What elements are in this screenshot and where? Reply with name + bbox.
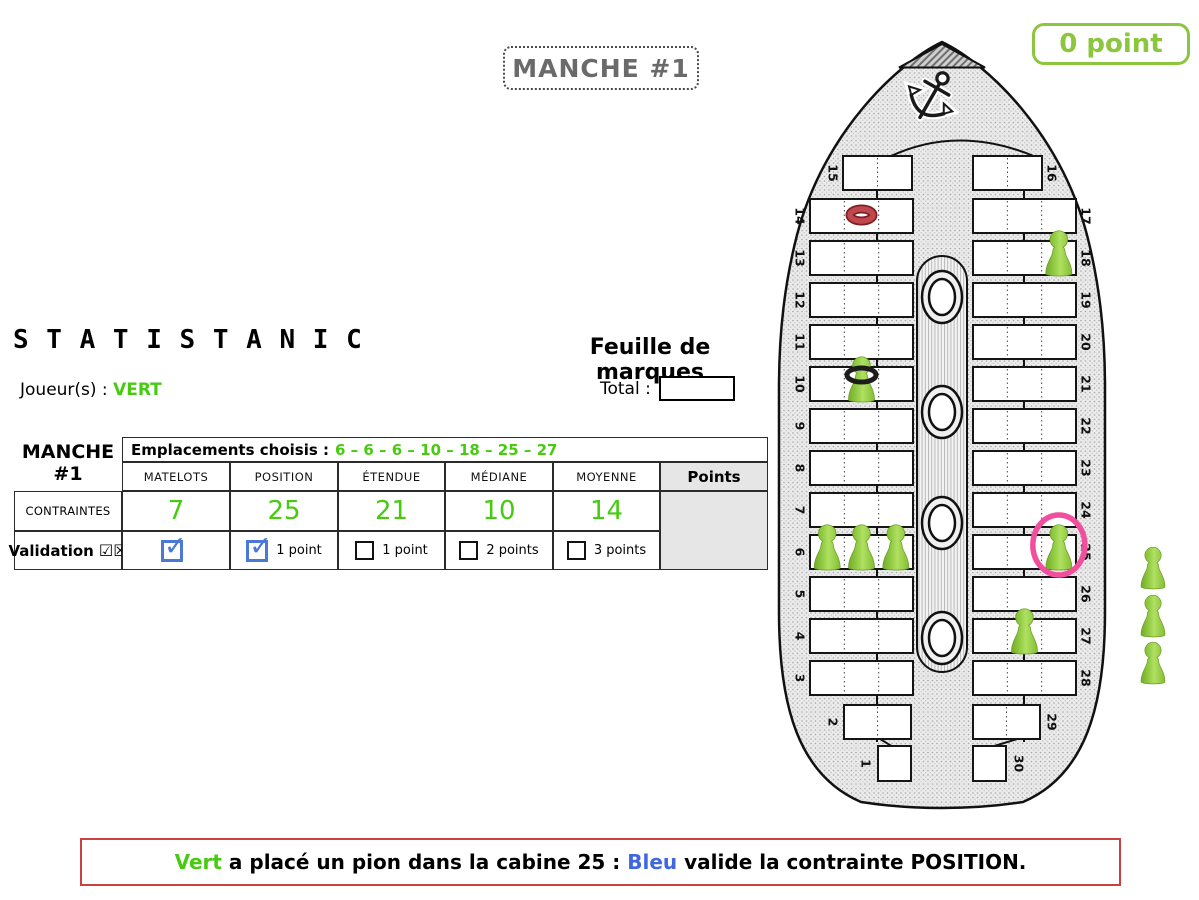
- cabin-13[interactable]: [810, 241, 913, 275]
- constraint-moyenne-value: 14: [553, 491, 660, 531]
- cabin-30[interactable]: [973, 746, 1006, 781]
- cabin-number-15: 15: [826, 164, 841, 181]
- reserve-pawn[interactable]: [1141, 642, 1165, 684]
- cabin-number-13: 13: [793, 249, 808, 266]
- emplacements-values: 6 – 6 – 6 – 10 – 18 – 25 – 27: [335, 441, 557, 459]
- cabin-number-21: 21: [1079, 375, 1094, 392]
- cabin-5[interactable]: [810, 577, 913, 611]
- validation-cell-etendue: 1 point: [338, 531, 445, 570]
- total-input[interactable]: [659, 376, 735, 401]
- round-badge: MANCHE #1: [503, 46, 699, 90]
- cabin-number-14: 14: [793, 207, 808, 225]
- cabin-number-9: 9: [793, 422, 808, 431]
- column-header-etendue: ÉTENDUE: [338, 462, 445, 491]
- cabin-12[interactable]: [810, 283, 913, 317]
- table-round-label: MANCHE: [22, 442, 114, 464]
- constraint-mediane-value: 10: [445, 491, 553, 531]
- cabin-number-4: 4: [793, 632, 808, 641]
- cabin-number-29: 29: [1045, 713, 1060, 730]
- message-bar: Vert a placé un pion dans la cabine 25 :…: [80, 838, 1121, 886]
- reserve-pawn[interactable]: [1141, 595, 1165, 637]
- cabin-number-3: 3: [793, 674, 808, 683]
- column-header-mediane: MÉDIANE: [445, 462, 553, 491]
- cabin-number-7: 7: [793, 506, 808, 515]
- cabin-9[interactable]: [810, 409, 913, 443]
- checkbox-position[interactable]: [246, 540, 268, 562]
- cabin-number-5: 5: [793, 590, 808, 599]
- total-label: Total :: [600, 379, 651, 399]
- cabin-8[interactable]: [810, 451, 913, 485]
- cabin-number-19: 19: [1079, 291, 1094, 308]
- emplacements-cell: Emplacements choisis : 6 – 6 – 6 – 10 – …: [122, 437, 768, 462]
- cabin-4[interactable]: [810, 619, 913, 653]
- ship-board: 1514131211109876543211617181920212223242…: [770, 28, 1199, 828]
- checkbox-label: 1 point: [382, 543, 428, 558]
- constraint-position-value: 25: [230, 491, 338, 531]
- cabin-number-20: 20: [1079, 333, 1094, 351]
- cabin-14[interactable]: [810, 199, 913, 233]
- cabin-number-28: 28: [1079, 669, 1094, 686]
- emplacements-label: Emplacements choisis :: [131, 441, 329, 459]
- funnel-icon-inner: [929, 394, 955, 430]
- cabin-3[interactable]: [810, 661, 913, 695]
- validation-label-text: Validation: [8, 542, 93, 560]
- cabin-number-17: 17: [1079, 207, 1094, 224]
- cabin-24[interactable]: [973, 493, 1076, 527]
- cabin-7[interactable]: [810, 493, 913, 527]
- cabin-28[interactable]: [973, 661, 1076, 695]
- cabin-1[interactable]: [878, 746, 911, 781]
- player-label: Joueur(s) :: [20, 380, 108, 400]
- cabin-20[interactable]: [973, 325, 1076, 359]
- bow-triangle: [899, 44, 985, 68]
- cabin-number-12: 12: [793, 291, 808, 308]
- validation-cell-mediane: 2 points: [445, 531, 553, 570]
- points-value-cell: [660, 491, 768, 570]
- cabin-23[interactable]: [973, 451, 1076, 485]
- cabin-number-18: 18: [1079, 249, 1094, 266]
- column-header-position: POSITION: [230, 462, 338, 491]
- cabin-number-30: 30: [1012, 755, 1027, 773]
- cabin-number-8: 8: [793, 464, 808, 473]
- cabin-number-27: 27: [1079, 627, 1094, 644]
- total-line: Total :: [600, 376, 735, 401]
- app-title: S T A T I S T A N I C: [13, 325, 363, 355]
- message-player-blue: Bleu: [627, 850, 677, 874]
- cabin-number-6: 6: [793, 548, 808, 557]
- score-table: MANCHE #1 Emplacements choisis : 6 – 6 –…: [14, 437, 768, 570]
- checkbox-label: 1 point: [276, 543, 322, 558]
- cabin-number-11: 11: [793, 333, 808, 350]
- funnel-icon-inner: [929, 505, 955, 541]
- cabin-number-22: 22: [1079, 417, 1094, 434]
- cabin-number-26: 26: [1079, 585, 1094, 603]
- round-badge-label: MANCHE #1: [512, 54, 690, 83]
- checkbox-etendue[interactable]: [355, 541, 374, 560]
- validation-cell-position: 1 point: [230, 531, 338, 570]
- constraints-row-label: CONTRAINTES: [14, 491, 122, 531]
- table-round-cell: MANCHE #1: [14, 437, 122, 491]
- cabin-number-24: 24: [1079, 501, 1094, 519]
- checkbox-label: 3 points: [594, 543, 646, 558]
- player-name: VERT: [113, 380, 162, 400]
- checkbox-mediane[interactable]: [459, 541, 478, 560]
- cabin-number-2: 2: [826, 718, 841, 727]
- cabin-number-10: 10: [793, 375, 808, 393]
- validation-cell-matelots: [122, 531, 230, 570]
- checkbox-matelots[interactable]: [161, 540, 183, 562]
- message-player-green: Vert: [175, 850, 222, 874]
- funnel-icon-inner: [929, 279, 955, 315]
- validation-cell-moyenne: 3 points: [553, 531, 660, 570]
- cabin-17[interactable]: [973, 199, 1076, 233]
- checkbox-moyenne[interactable]: [567, 541, 586, 560]
- cabin-21[interactable]: [973, 367, 1076, 401]
- points-header: Points: [660, 462, 768, 491]
- cabin-number-23: 23: [1079, 459, 1094, 476]
- constraint-etendue-value: 21: [338, 491, 445, 531]
- table-round-number: #1: [53, 464, 82, 486]
- cabin-19[interactable]: [973, 283, 1076, 317]
- column-header-matelots: MATELOTS: [122, 462, 230, 491]
- message-text: valide la contrainte POSITION.: [677, 850, 1026, 874]
- cabin-22[interactable]: [973, 409, 1076, 443]
- funnel-icon-inner: [929, 620, 955, 656]
- reserve-pawn[interactable]: [1141, 547, 1165, 589]
- cabin-number-16: 16: [1045, 164, 1060, 182]
- validation-row-label: Validation ☑☒: [14, 531, 122, 570]
- message-text: a placé un pion dans la cabine 25 :: [222, 850, 627, 874]
- cabin-26[interactable]: [973, 577, 1076, 611]
- cabin-11[interactable]: [810, 325, 913, 359]
- constraint-matelots-value: 7: [122, 491, 230, 531]
- player-line: Joueur(s) : VERT: [20, 380, 162, 400]
- column-header-moyenne: MOYENNE: [553, 462, 660, 491]
- cabin-number-1: 1: [859, 759, 874, 768]
- checkbox-label: 2 points: [486, 543, 538, 558]
